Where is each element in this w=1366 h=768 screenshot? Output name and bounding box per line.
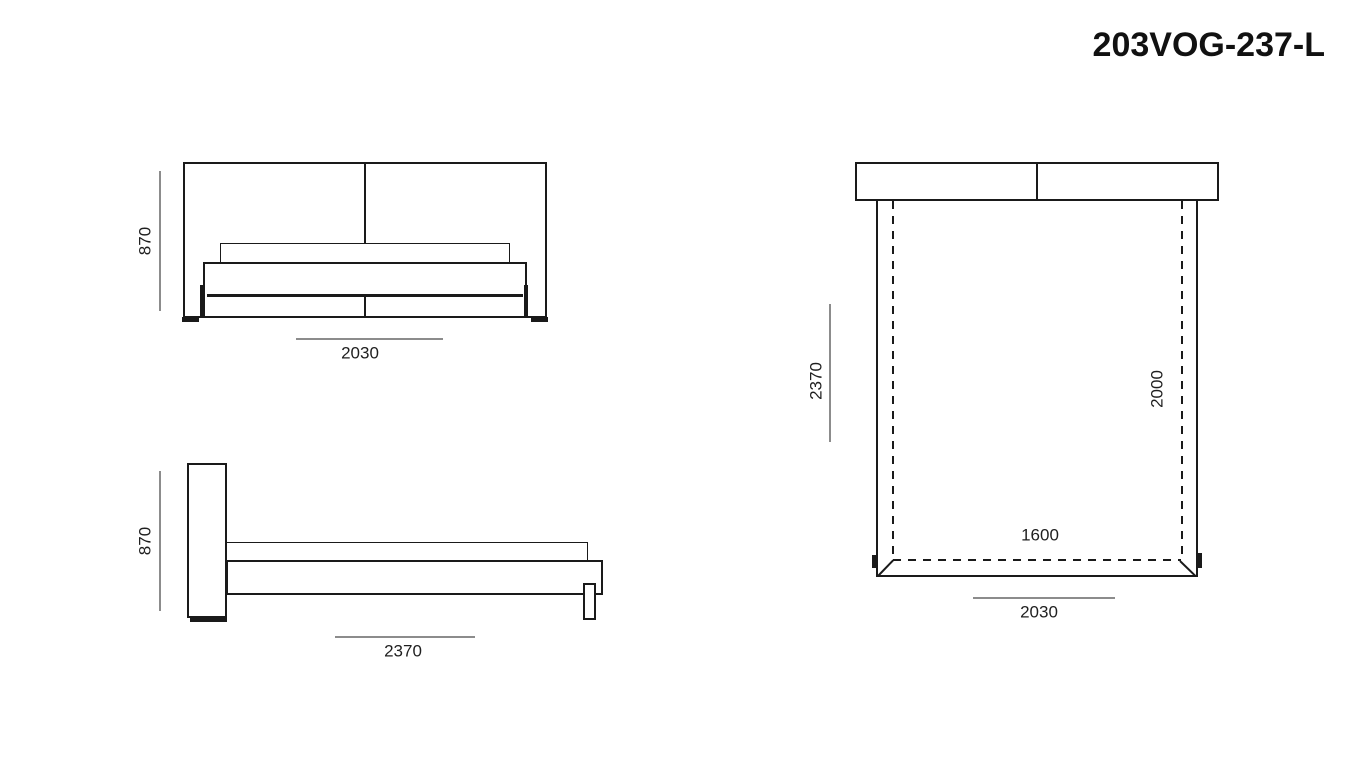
top-length-dim-label: 2370 [808,362,825,400]
front-right-leg [524,285,528,318]
front-mattress-outline [220,243,510,263]
front-height-dim-label: 870 [137,227,154,255]
top-width-dim-line [973,597,1115,599]
side-headboard-foot [190,617,227,622]
front-width-dim-label: 2030 [341,345,379,362]
side-length-dim-line [335,636,475,638]
side-height-dim-label: 870 [137,527,154,555]
side-height-dim-line [159,471,161,611]
top-left-foot-tick [872,555,877,568]
side-mattress-outline [226,542,588,561]
front-base-split-line [364,297,366,318]
top-headboard-split-line [1036,162,1038,201]
top-mattress-width-label: 1600 [1021,527,1059,544]
top-frame-foot-edge [877,575,1198,577]
top-right-foot-tick [1197,553,1202,568]
top-frame-left-edge [876,200,878,577]
top-mattress-left-dashed-edge [892,201,894,561]
front-left-foot [182,317,199,322]
side-headboard-outline [187,463,227,618]
front-height-dim-line [159,171,161,311]
top-mattress-bottom-dashed-edge [893,559,1181,561]
side-rear-leg [583,583,596,620]
front-right-foot [531,317,548,322]
front-left-leg [200,285,204,318]
top-width-dim-label: 2030 [1020,604,1058,621]
top-length-dim-line [829,304,831,442]
top-mattress-right-dashed-edge [1181,201,1183,561]
front-width-dim-line [296,338,443,340]
top-frame-right-edge [1196,200,1198,577]
drawing-title: 203VOG-237-L [1093,26,1325,64]
top-mattress-length-label: 2000 [1149,370,1166,408]
side-length-dim-label: 2370 [384,643,422,660]
front-headboard-split-line [364,162,366,244]
side-bed-base-outline [226,560,603,595]
